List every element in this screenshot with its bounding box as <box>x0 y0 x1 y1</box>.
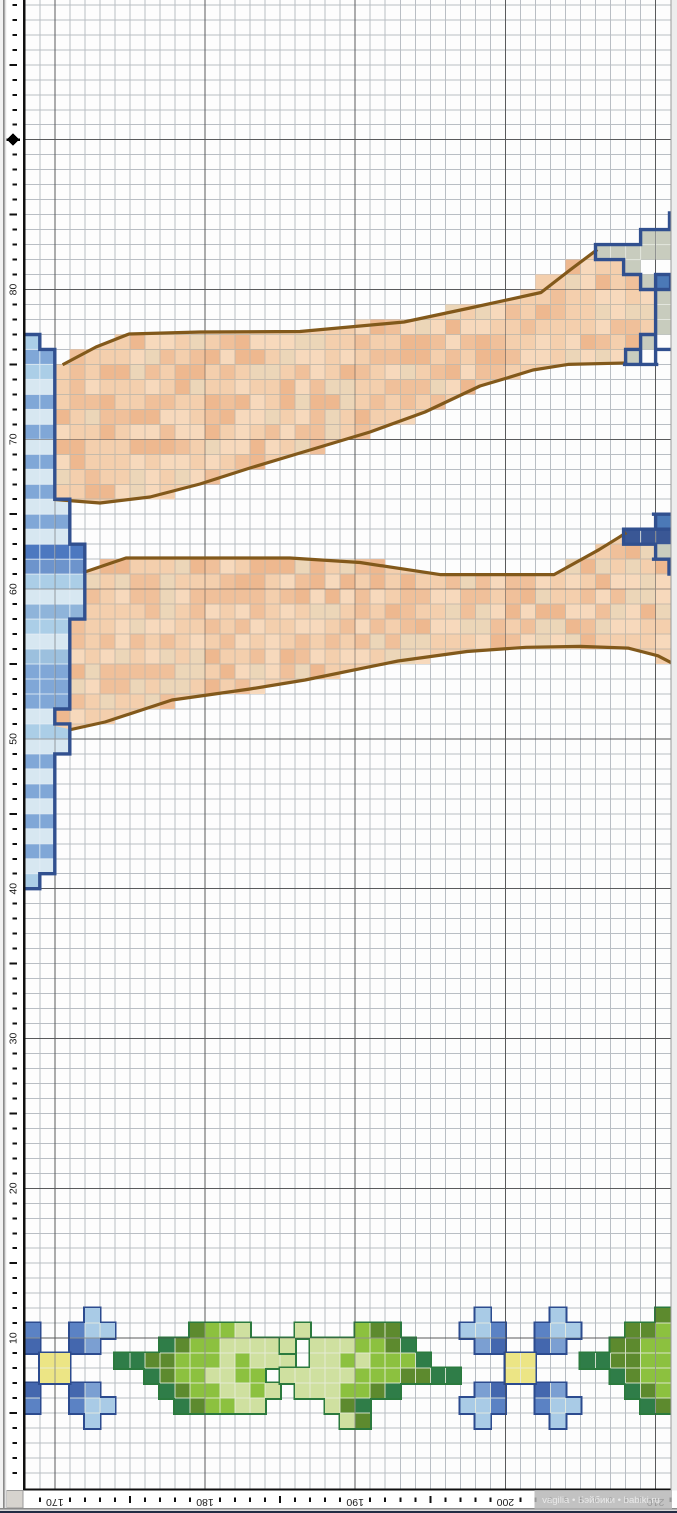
svg-text:80: 80 <box>8 284 20 296</box>
svg-text:170: 170 <box>46 1496 64 1508</box>
svg-text:20: 20 <box>8 1182 20 1194</box>
svg-text:30: 30 <box>8 1033 20 1045</box>
svg-text:190: 190 <box>346 1496 364 1508</box>
svg-text:60: 60 <box>8 583 20 595</box>
svg-text:70: 70 <box>8 433 20 445</box>
svg-text:40: 40 <box>8 883 20 895</box>
svg-text:vagilia • Бэйбики • babiki.ru: vagilia • Бэйбики • babiki.ru <box>542 1495 660 1506</box>
svg-text:10: 10 <box>8 1332 20 1344</box>
svg-text:200: 200 <box>496 1496 514 1508</box>
svg-text:180: 180 <box>196 1496 214 1508</box>
svg-text:50: 50 <box>8 733 20 745</box>
